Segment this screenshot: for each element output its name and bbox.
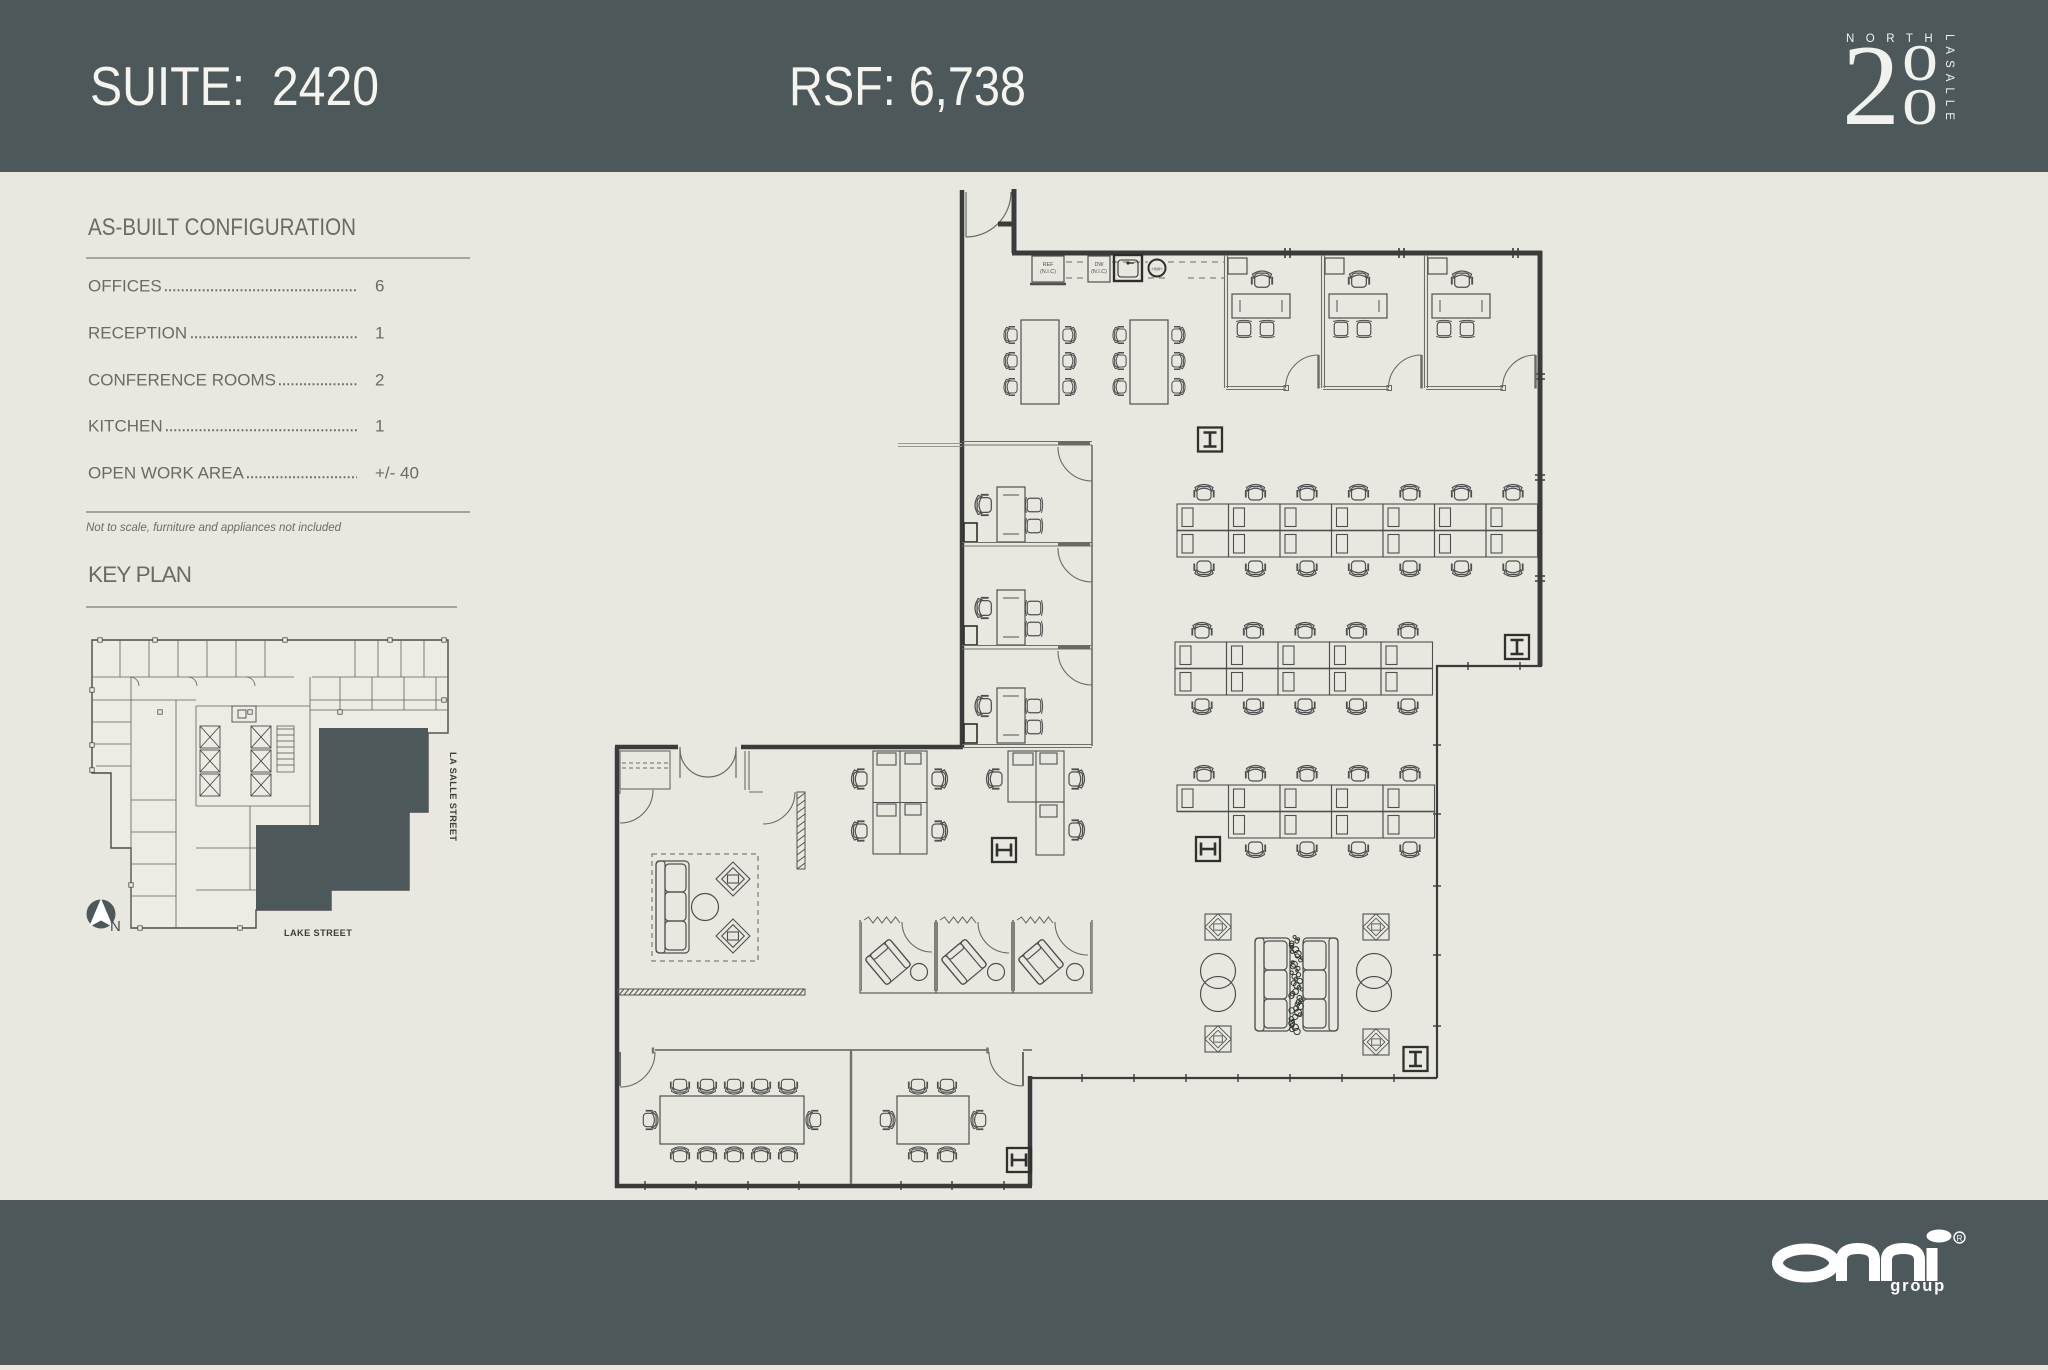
svg-text:(N.I.C): (N.I.C) [1040,269,1056,275]
svg-text:1: 1 [375,324,384,343]
svg-text:OFFICES: OFFICES [88,277,162,296]
svg-text:1: 1 [375,417,384,436]
svg-text:2: 2 [375,371,384,390]
svg-text:CONFERENCE ROOMS: CONFERENCE ROOMS [88,371,276,390]
svg-text:HWH: HWH [1152,267,1163,272]
svg-text:(N.I.C): (N.I.C) [1091,269,1107,275]
svg-text:+/- 40: +/- 40 [375,464,419,483]
svg-text:AS-BUILT CONFIGURATION: AS-BUILT CONFIGURATION [88,214,356,241]
svg-text:SUITE: 2420: SUITE: 2420 [90,55,379,117]
svg-text:N: N [110,918,121,935]
svg-text:KITCHEN: KITCHEN [88,417,163,436]
svg-text:DW: DW [1095,262,1105,268]
svg-text:KEY PLAN: KEY PLAN [88,562,191,587]
svg-text:o: o [1902,60,1938,140]
svg-text:OPEN WORK AREA: OPEN WORK AREA [88,464,245,483]
svg-text:RSF: 6,738: RSF: 6,738 [789,55,1026,117]
svg-text:LA SALLE STREET: LA SALLE STREET [448,752,458,841]
svg-text:6: 6 [375,277,384,296]
svg-text:group: group [1890,1277,1946,1295]
svg-text:LASALLE: LASALLE [1943,34,1955,126]
svg-text:RECEPTION: RECEPTION [88,324,187,343]
svg-text:LAKE STREET: LAKE STREET [284,928,352,938]
svg-text:Not to scale, furniture and ap: Not to scale, furniture and appliances n… [86,522,342,534]
svg-text:2: 2 [1842,22,1900,150]
svg-text:REF: REF [1043,262,1054,268]
svg-text:R: R [1957,1234,1963,1243]
